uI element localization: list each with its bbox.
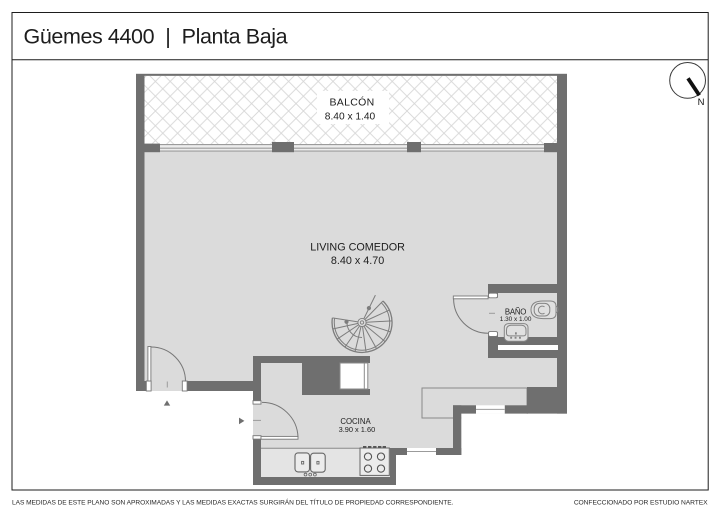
svg-text:LAS MEDIDAS DE ESTE PLANO SON: LAS MEDIDAS DE ESTE PLANO SON APROXIMADA… (12, 498, 454, 507)
svg-text:3.90 x 1.60: 3.90 x 1.60 (339, 425, 376, 434)
svg-text:CONFECCIONADO POR ESTUDIO NART: CONFECCIONADO POR ESTUDIO NARTEX (574, 500, 708, 507)
svg-text:1.30 x 1.00: 1.30 x 1.00 (500, 316, 532, 323)
svg-text:N: N (698, 97, 705, 108)
svg-text:BAÑO: BAÑO (505, 307, 526, 316)
svg-text:8.40 x 1.40: 8.40 x 1.40 (325, 112, 376, 123)
svg-text:LIVING COMEDOR: LIVING COMEDOR (310, 242, 405, 254)
svg-text:Güemes 4400 | Planta Baja: Güemes 4400 | Planta Baja (24, 25, 288, 49)
svg-text:8.40 x 4.70: 8.40 x 4.70 (331, 255, 384, 267)
svg-text:BALCÓN: BALCÓN (330, 96, 375, 109)
